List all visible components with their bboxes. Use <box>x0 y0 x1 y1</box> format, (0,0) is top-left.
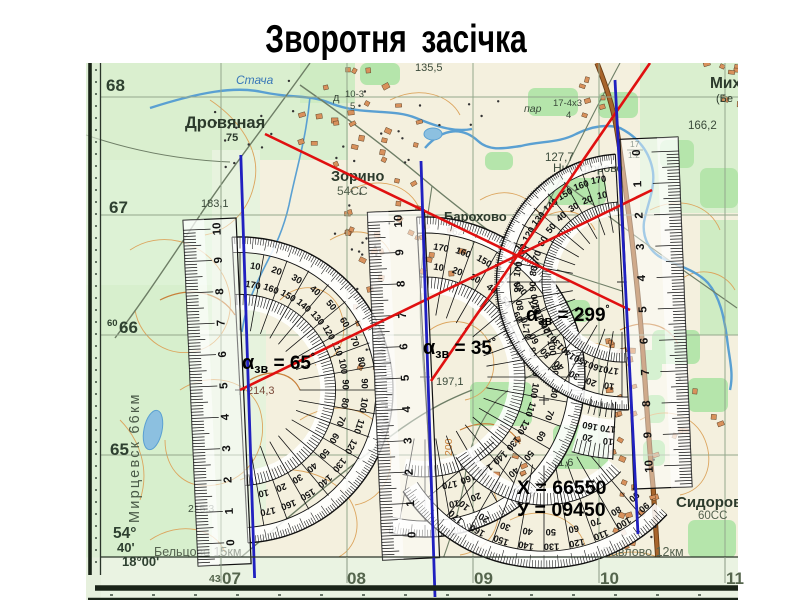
svg-text:5: 5 <box>218 382 230 390</box>
svg-text:90: 90 <box>341 379 351 389</box>
svg-text:60: 60 <box>568 523 580 535</box>
svg-text:3: 3 <box>635 243 647 250</box>
svg-text:10: 10 <box>600 569 619 588</box>
svg-text:80: 80 <box>339 397 351 409</box>
svg-text:130: 130 <box>544 541 560 551</box>
svg-text:4: 4 <box>401 405 413 413</box>
svg-text:67: 67 <box>109 198 128 217</box>
svg-text:5: 5 <box>400 374 412 382</box>
svg-text:У = 09450: У = 09450 <box>517 499 606 521</box>
svg-text:2: 2 <box>633 212 645 219</box>
svg-text:8: 8 <box>641 400 653 407</box>
svg-text:20: 20 <box>581 432 593 444</box>
svg-text:40': 40' <box>117 540 135 555</box>
svg-text:10: 10 <box>603 380 615 392</box>
svg-text:43: 43 <box>209 573 221 585</box>
svg-text:8: 8 <box>395 280 407 288</box>
svg-text:68: 68 <box>106 76 125 95</box>
svg-text:54СС: 54СС <box>337 184 368 198</box>
svg-text:Стача: Стача <box>236 73 274 87</box>
svg-text:75: 75 <box>226 132 238 144</box>
svg-text:Сидорово: Сидорово <box>676 494 751 511</box>
svg-text:6: 6 <box>217 351 229 358</box>
svg-text:3: 3 <box>221 445 233 452</box>
svg-text:4: 4 <box>636 274 648 281</box>
svg-text:80: 80 <box>514 299 526 311</box>
svg-text:10: 10 <box>393 214 406 227</box>
svg-text:90: 90 <box>528 281 538 291</box>
svg-text:1: 1 <box>632 180 644 187</box>
svg-text:18°00': 18°00' <box>122 554 159 569</box>
svg-text:08: 08 <box>347 569 366 588</box>
svg-text:Мирцевск 66км: Мирцевск 66км <box>127 392 143 523</box>
svg-text:17-4x3: 17-4x3 <box>553 98 582 109</box>
svg-text:1: 1 <box>405 499 417 507</box>
svg-text:αзв = 65˚: αзв = 65˚ <box>242 351 315 376</box>
svg-text:7: 7 <box>640 369 652 376</box>
svg-text:10: 10 <box>643 460 656 473</box>
svg-text:5: 5 <box>350 101 355 112</box>
svg-text:80: 80 <box>356 356 368 368</box>
svg-text:Х = 66550: Х = 66550 <box>517 477 607 499</box>
svg-text:8: 8 <box>214 288 226 296</box>
svg-text:αзв = 35˚: αзв = 35˚ <box>423 336 496 361</box>
svg-text:0: 0 <box>406 531 418 538</box>
svg-text:10: 10 <box>433 262 445 274</box>
svg-text:10: 10 <box>602 436 613 447</box>
svg-text:10-3: 10-3 <box>345 89 364 100</box>
svg-text:10: 10 <box>596 189 608 201</box>
svg-text:7: 7 <box>215 319 227 326</box>
svg-text:90: 90 <box>360 378 370 388</box>
svg-text:09: 09 <box>474 569 493 588</box>
svg-text:60: 60 <box>107 318 118 329</box>
svg-text:90: 90 <box>512 282 522 292</box>
svg-text:6: 6 <box>398 343 410 350</box>
svg-text:66: 66 <box>119 318 138 337</box>
svg-text:9: 9 <box>213 257 225 264</box>
svg-text:6: 6 <box>638 337 650 344</box>
svg-text:пар: пар <box>524 103 542 115</box>
svg-text:40: 40 <box>522 526 534 538</box>
svg-text:183,1: 183,1 <box>201 198 229 210</box>
svg-text:(Бе: (Бе <box>716 93 733 105</box>
svg-text:2: 2 <box>222 476 234 483</box>
svg-text:10: 10 <box>258 487 270 499</box>
svg-text:50: 50 <box>546 527 556 537</box>
svg-text:1: 1 <box>224 507 236 515</box>
svg-text:65: 65 <box>110 440 129 459</box>
svg-text:д: д <box>333 92 340 104</box>
svg-text:9: 9 <box>642 432 654 439</box>
svg-text:Мих: Мих <box>710 75 741 92</box>
svg-text:214,3: 214,3 <box>247 385 275 397</box>
svg-text:60СС: 60СС <box>698 510 727 522</box>
svg-text:9: 9 <box>394 249 406 256</box>
svg-text:Дровяная: Дровяная <box>185 114 265 132</box>
svg-text:07: 07 <box>222 569 241 588</box>
svg-text:3: 3 <box>402 437 414 444</box>
svg-text:10: 10 <box>211 222 224 235</box>
svg-text:2: 2 <box>404 469 416 476</box>
svg-text:0: 0 <box>631 149 643 156</box>
svg-text:11: 11 <box>726 569 744 588</box>
svg-text:135,5: 135,5 <box>415 62 443 74</box>
svg-text:0: 0 <box>225 539 237 546</box>
svg-text:5: 5 <box>637 305 649 312</box>
svg-text:10: 10 <box>249 261 261 273</box>
svg-text:Зворотня засічка: Зворотня засічка <box>265 19 527 61</box>
svg-text:Зорино: Зорино <box>331 169 384 185</box>
svg-text:166,2: 166,2 <box>688 120 717 132</box>
svg-text:197,1: 197,1 <box>436 376 464 388</box>
svg-text:4: 4 <box>566 110 571 121</box>
svg-text:4: 4 <box>220 413 232 421</box>
